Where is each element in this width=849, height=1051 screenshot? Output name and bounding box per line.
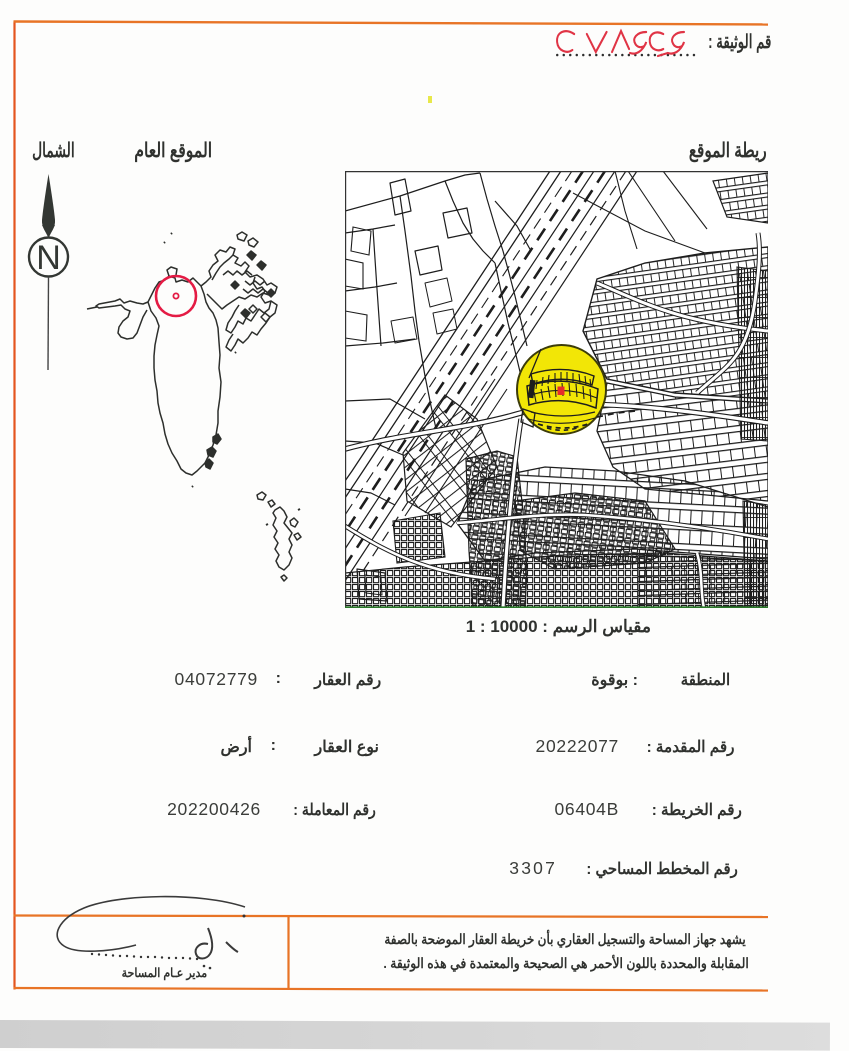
svg-text:N: N: [36, 239, 61, 277]
